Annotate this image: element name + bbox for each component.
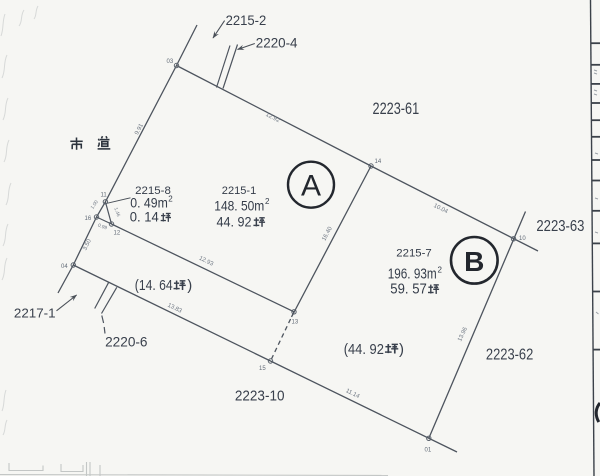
svg-text:2223-63: 2223-63 <box>536 218 584 235</box>
svg-text:2215-1: 2215-1 <box>222 185 256 197</box>
svg-text:2223-61: 2223-61 <box>373 99 420 118</box>
svg-text:13: 13 <box>292 320 299 326</box>
svg-text:2: 2 <box>168 195 173 204</box>
svg-text:0. 14: 0. 14 <box>130 209 159 225</box>
svg-text:14: 14 <box>375 159 382 165</box>
svg-text:2223-10: 2223-10 <box>235 388 285 405</box>
svg-text:2217-1: 2217-1 <box>14 306 56 321</box>
svg-text:): ) <box>187 277 192 294</box>
svg-text:): ) <box>399 341 404 358</box>
svg-text:2215-2: 2215-2 <box>226 13 267 28</box>
svg-text:2215-7: 2215-7 <box>396 248 431 260</box>
svg-text:16: 16 <box>85 216 92 222</box>
svg-text:03: 03 <box>167 59 174 65</box>
svg-text:B: B <box>464 246 484 277</box>
svg-text:A: A <box>301 170 321 203</box>
svg-text:(14. 64: (14. 64 <box>135 277 173 294</box>
svg-text:04: 04 <box>61 264 68 270</box>
svg-text:148. 50m: 148. 50m <box>214 197 264 213</box>
svg-text:15: 15 <box>259 366 266 372</box>
svg-text:10: 10 <box>519 236 526 242</box>
svg-text:2223-62: 2223-62 <box>486 346 533 363</box>
svg-text:(44. 92: (44. 92 <box>344 341 384 358</box>
svg-text:01: 01 <box>425 448 432 454</box>
svg-text:11: 11 <box>101 193 108 199</box>
svg-text:2220-4: 2220-4 <box>256 35 298 51</box>
svg-text:196. 93m: 196. 93m <box>388 267 437 283</box>
svg-text:2: 2 <box>265 197 270 206</box>
svg-text:2220-6: 2220-6 <box>105 334 148 350</box>
svg-text:44. 92: 44. 92 <box>217 214 252 230</box>
svg-text:2: 2 <box>438 265 443 274</box>
svg-text:59. 57: 59. 57 <box>390 281 427 297</box>
svg-text:12: 12 <box>114 231 121 237</box>
